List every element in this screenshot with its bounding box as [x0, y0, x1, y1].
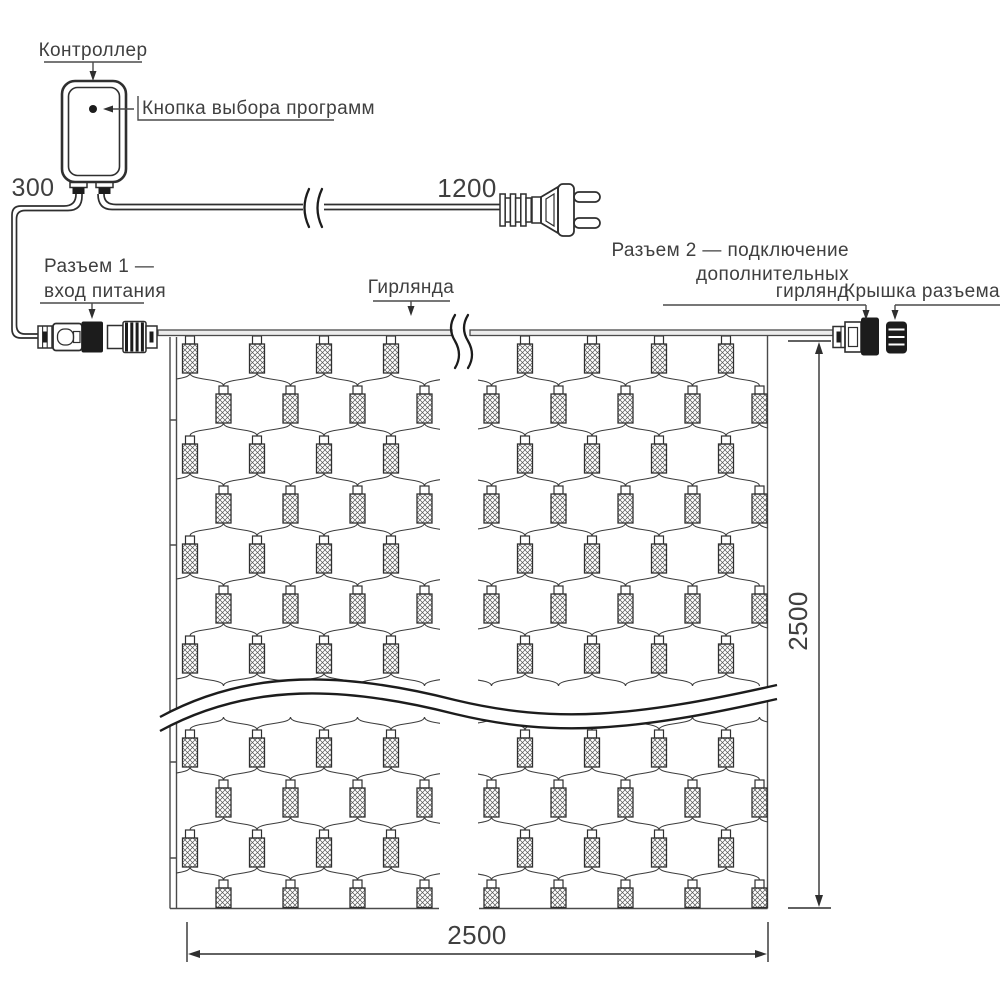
- connector1-label-line1: Разъем 1 —: [44, 256, 154, 277]
- wavy-break: [160, 679, 777, 731]
- cord-break-icon: [318, 189, 323, 227]
- cap-callout: [892, 305, 1000, 320]
- controller: [62, 81, 126, 194]
- height-value: 2500: [783, 591, 813, 650]
- connector2-callout: [663, 305, 870, 320]
- cap-label: Крышка разъема: [844, 281, 1000, 302]
- plug-prong: [574, 192, 600, 202]
- plug-prong: [574, 218, 600, 228]
- controller-callout: [44, 62, 142, 81]
- controller-label: Контроллер: [39, 40, 148, 61]
- connector-cap: [886, 322, 907, 354]
- connector1-callout: [40, 303, 144, 319]
- lead-length-value: 300: [12, 174, 55, 202]
- connector2-label-line3: гирлянд: [776, 281, 849, 302]
- connector-2: [833, 318, 879, 356]
- connector-1: [38, 322, 157, 353]
- cord-break-icon: [305, 189, 310, 227]
- garland-callout: [373, 301, 450, 316]
- wire-break-icon: [451, 315, 459, 368]
- controller-grommets: [70, 183, 113, 195]
- button-label: Кнопка выбора программ: [142, 98, 375, 119]
- net-panel-right: [425, 336, 794, 908]
- connector1-label-line2: вход питания: [44, 281, 166, 302]
- power-plug: [500, 184, 600, 236]
- cord-length-value: 1200: [437, 173, 496, 203]
- garland-diagram: Контроллер Кнопка выбора программ 300 12…: [0, 0, 1000, 1000]
- connector2-label-line1: Разъем 2 — подключение: [611, 240, 849, 261]
- wire-break-icon: [464, 315, 472, 368]
- garland-label: Гирлянда: [368, 277, 455, 298]
- width-value: 2500: [447, 920, 506, 950]
- product-diagram-page: Контроллер Кнопка выбора программ 300 12…: [0, 0, 1000, 1000]
- net-panel-left: [157, 336, 492, 908]
- program-button: [89, 105, 97, 113]
